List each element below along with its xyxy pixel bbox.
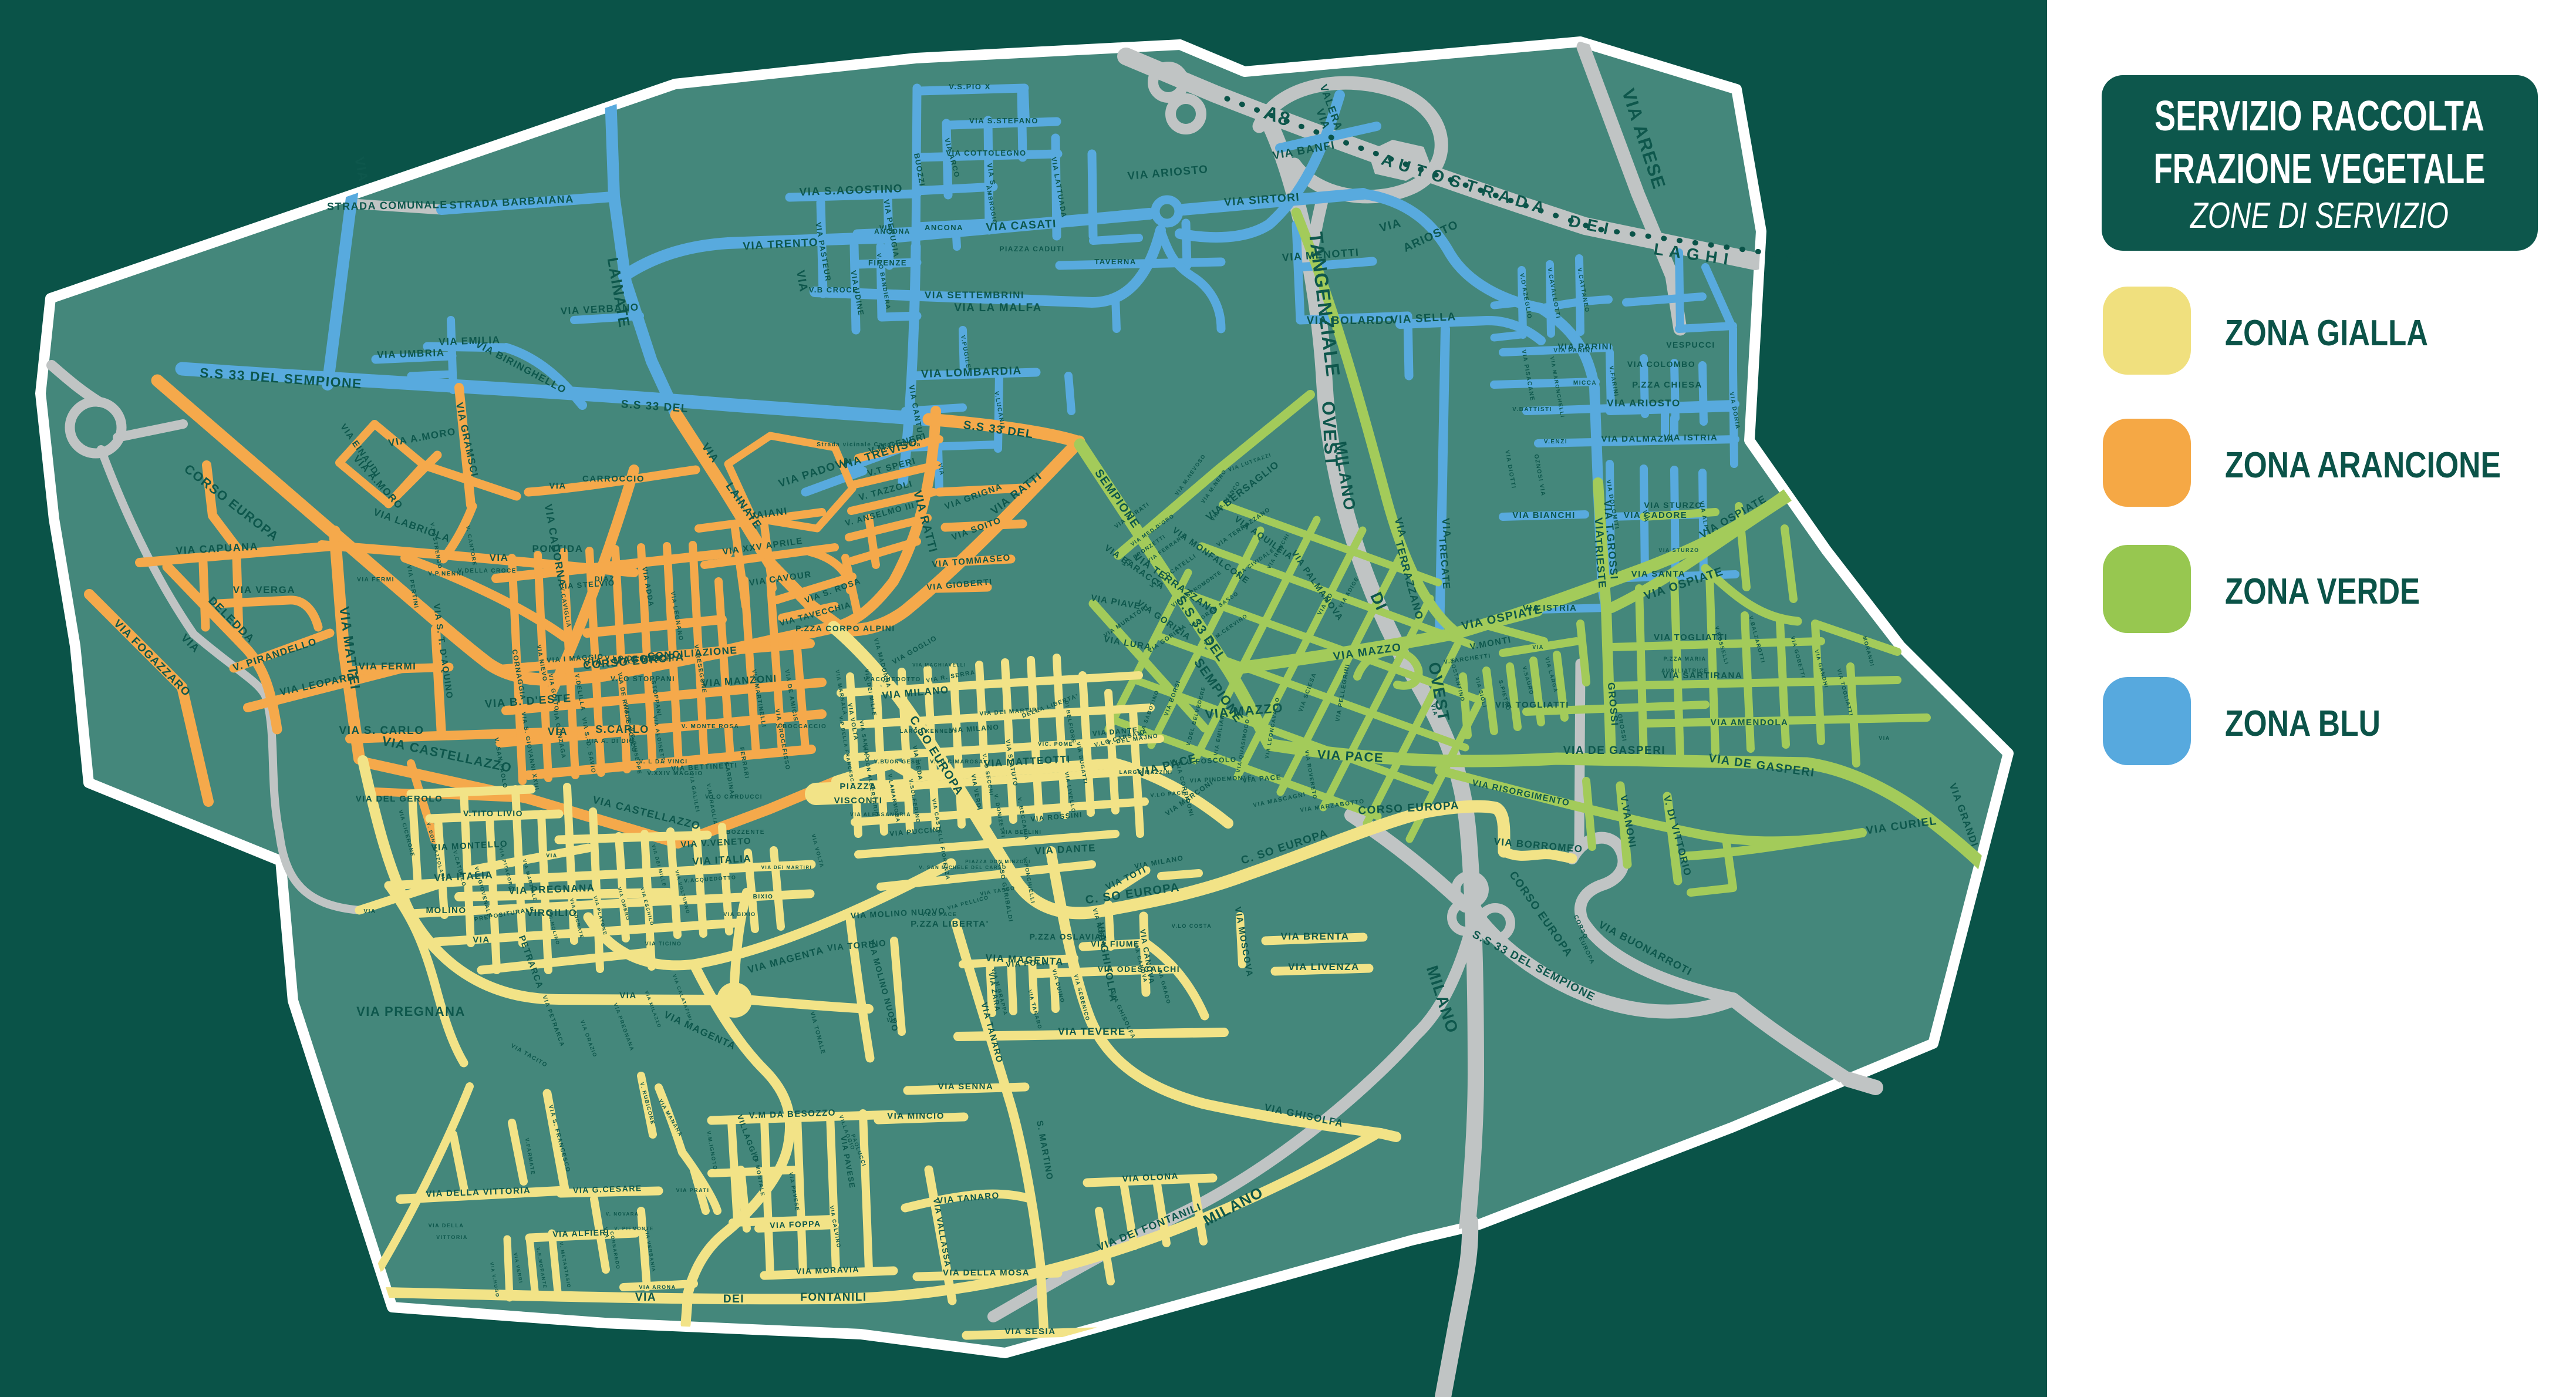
svg-text:V.LO DE MARCHI: V.LO DE MARCHI [605, 654, 675, 662]
svg-text:VIA FERMI: VIA FERMI [359, 661, 417, 672]
svg-text:V.BATTISTI: V.BATTISTI [1512, 406, 1552, 413]
svg-text:VIA: VIA [490, 552, 509, 563]
svg-text:FONTANILI: FONTANILI [800, 1291, 866, 1304]
svg-text:VIA: VIA [549, 481, 567, 491]
svg-text:V.LO PACE: V.LO PACE [922, 911, 957, 917]
svg-text:VIA: VIA [635, 1291, 656, 1304]
svg-text:MICCA: MICCA [1573, 380, 1597, 386]
svg-text:V.DELLA CROCE: V.DELLA CROCE [458, 568, 517, 574]
svg-text:ZONE DI SERVIZIO: ZONE DI SERVIZIO [2189, 196, 2449, 236]
svg-text:VIA BRENTA: VIA BRENTA [1281, 931, 1350, 942]
svg-text:VIA PARINI: VIA PARINI [1553, 348, 1593, 354]
svg-text:LARGO MAZZINI: LARGO MAZZINI [1120, 769, 1173, 775]
svg-text:VIA UMBRIA: VIA UMBRIA [377, 347, 445, 361]
svg-text:BIXIO: BIXIO [753, 894, 774, 900]
svg-text:VIA S.STEFANO: VIA S.STEFANO [969, 116, 1039, 125]
svg-text:SERVIZIO RACCOLTA: SERVIZIO RACCOLTA [2154, 93, 2484, 140]
svg-text:VIA VERGA: VIA VERGA [233, 584, 295, 595]
svg-text:V.ACQUEDOTTO: V.ACQUEDOTTO [864, 676, 921, 683]
svg-text:VIA TICINO: VIA TICINO [645, 941, 682, 947]
svg-text:VIA: VIA [363, 908, 376, 915]
svg-text:P.ZZA CHIESA: P.ZZA CHIESA [1632, 380, 1702, 390]
svg-text:VIA TEVERE: VIA TEVERE [1058, 1026, 1125, 1037]
svg-text:VIA DE GASPERI: VIA DE GASPERI [1563, 745, 1665, 757]
svg-text:BOZZENTE: BOZZENTE [726, 829, 765, 836]
svg-text:VITTORIA: VITTORIA [436, 1234, 468, 1240]
svg-text:P.ZZA CORPO ALPINI: P.ZZA CORPO ALPINI [795, 624, 895, 633]
svg-text:S.CARLO: S.CARLO [595, 723, 649, 735]
svg-text:VIC. POME': VIC. POME' [1038, 741, 1075, 747]
svg-text:PIAZZA DON MINZONI: PIAZZA DON MINZONI [965, 859, 1031, 864]
svg-text:ANCONA: ANCONA [925, 223, 963, 232]
svg-text:VIA BIANCHI: VIA BIANCHI [1512, 510, 1576, 520]
svg-text:VIA COTTOLEGNO: VIA COTTOLEGNO [946, 149, 1026, 157]
svg-text:V.ENZI: V.ENZI [1544, 439, 1567, 445]
svg-text:VIA: VIA [473, 935, 490, 945]
svg-text:ZONA VERDE: ZONA VERDE [2225, 571, 2420, 612]
svg-text:VIA ARONA: VIA ARONA [639, 1284, 676, 1290]
svg-text:P.ZZA MARIA: P.ZZA MARIA [1663, 656, 1706, 662]
svg-text:V.B CROCE: V.B CROCE [809, 285, 859, 294]
svg-text:V. MONTE ROSA: V. MONTE ROSA [682, 723, 740, 730]
svg-text:P.ZZA LIBERTA': P.ZZA LIBERTA' [911, 919, 989, 929]
svg-text:V.LO COSTA: V.LO COSTA [1172, 923, 1212, 929]
svg-text:PIAZZA CADUTI: PIAZZA CADUTI [999, 245, 1064, 253]
svg-text:VIA FERMI: VIA FERMI [357, 577, 395, 583]
svg-text:VIA AMENDOLA: VIA AMENDOLA [1711, 718, 1789, 728]
svg-text:VIA ISTRIA: VIA ISTRIA [1664, 433, 1718, 443]
svg-text:MOLINO: MOLINO [426, 905, 467, 915]
svg-text:VIA MACHIAVELLI: VIA MACHIAVELLI [912, 662, 966, 668]
svg-text:V. PIEMONTE: V. PIEMONTE [614, 1226, 653, 1231]
svg-text:VIA ALESSANDRIA: VIA ALESSANDRIA [850, 812, 911, 817]
svg-text:VIA STURZO: VIA STURZO [1644, 500, 1702, 510]
svg-text:VIA: VIA [886, 1017, 898, 1023]
svg-text:STRADA COMUNALE: STRADA COMUNALE [327, 198, 448, 213]
svg-text:VIA: VIA [546, 853, 558, 859]
svg-text:Strada vicinale Cascina Fara: Strada vicinale Cascina Fara [817, 442, 921, 448]
svg-text:V.BUON GESU': V.BUON GESU' [874, 759, 922, 765]
svg-text:P.ZZA OSLAVIA: P.ZZA OSLAVIA [1030, 932, 1102, 941]
svg-text:ZONA BLU: ZONA BLU [2225, 703, 2381, 744]
svg-text:VIA STURZO: VIA STURZO [1658, 547, 1699, 553]
svg-text:VIA: VIA [1532, 644, 1544, 650]
svg-text:VIA S. CARLO: VIA S. CARLO [339, 725, 424, 737]
svg-text:VIA: VIA [1440, 517, 1454, 538]
svg-text:PONTIDA: PONTIDA [532, 543, 584, 554]
svg-text:V.LO CIMAROSA: V.LO CIMAROSA [930, 759, 983, 765]
svg-text:VIA MINCIO: VIA MINCIO [887, 1111, 945, 1121]
svg-text:VIA DELLA: VIA DELLA [429, 1223, 464, 1228]
svg-text:FRAZIONE VEGETALE: FRAZIONE VEGETALE [2154, 146, 2486, 193]
svg-text:V.LO CARDUCCI: V.LO CARDUCCI [705, 794, 763, 800]
svg-text:VIA PREGNANA: VIA PREGNANA [356, 1004, 466, 1019]
svg-text:LARGO KENNEDY: LARGO KENNEDY [900, 728, 958, 734]
svg-text:VIA BELLINI: VIA BELLINI [1002, 829, 1042, 835]
svg-text:VIA SENNA: VIA SENNA [938, 1082, 994, 1092]
svg-text:VIA FOPPA: VIA FOPPA [770, 1218, 821, 1230]
svg-text:FIRENZE: FIRENZE [868, 258, 907, 267]
svg-text:AUSILIATRICE: AUSILIATRICE [1661, 668, 1708, 674]
svg-text:V. SAN MICHELE DEL CARSO: V. SAN MICHELE DEL CARSO [919, 865, 1006, 870]
svg-text:VIA: VIA [1879, 735, 1890, 741]
svg-text:VIA CADORE: VIA CADORE [1624, 510, 1688, 520]
svg-text:VIA BOLARDO: VIA BOLARDO [1307, 315, 1394, 327]
svg-text:V.S.PIO X: V.S.PIO X [949, 82, 991, 91]
svg-text:VIA SESIA: VIA SESIA [1004, 1327, 1056, 1337]
svg-text:VIA SANTA: VIA SANTA [1631, 569, 1686, 579]
svg-text:VESPUCCI: VESPUCCI [1666, 340, 1715, 349]
svg-text:ANCONA: ANCONA [874, 227, 911, 235]
svg-text:ZONA ARANCIONE: ZONA ARANCIONE [2225, 445, 2501, 486]
svg-text:VIA DELLA MOSA: VIA DELLA MOSA [943, 1268, 1030, 1278]
svg-text:VIA ARIOSTO: VIA ARIOSTO [1607, 398, 1680, 409]
svg-text:VIA PRATI: VIA PRATI [676, 1187, 709, 1193]
svg-text:VIA LIVENZA: VIA LIVENZA [1288, 961, 1360, 972]
svg-text:V. NOVARA: V. NOVARA [606, 1211, 639, 1217]
svg-text:DEI: DEI [723, 1293, 744, 1305]
svg-text:VIA DEL GEROLO: VIA DEL GEROLO [356, 794, 443, 804]
svg-text:ZONA GIALLA: ZONA GIALLA [2225, 313, 2428, 354]
svg-text:DIAZ: DIAZ [595, 575, 615, 583]
svg-text:TAVERNA: TAVERNA [1094, 257, 1136, 266]
svg-text:VIA COLOMBO: VIA COLOMBO [1627, 359, 1695, 369]
svg-text:VIA BIXIO: VIA BIXIO [723, 911, 756, 917]
svg-text:VIA: VIA [619, 991, 637, 1001]
svg-text:VIA A. DI DIO: VIA A. DI DIO [586, 738, 635, 745]
svg-text:VIA ALFIERI: VIA ALFIERI [552, 1227, 610, 1238]
svg-text:CARROCCIO: CARROCCIO [582, 474, 645, 484]
svg-text:VIA LA MALFA: VIA LA MALFA [954, 302, 1042, 314]
svg-text:V.TITO LIVIO: V.TITO LIVIO [463, 809, 523, 818]
svg-text:VIA SETTEMBRINI: VIA SETTEMBRINI [925, 290, 1024, 301]
svg-text:VIA DEI MARTIRI: VIA DEI MARTIRI [761, 865, 812, 870]
